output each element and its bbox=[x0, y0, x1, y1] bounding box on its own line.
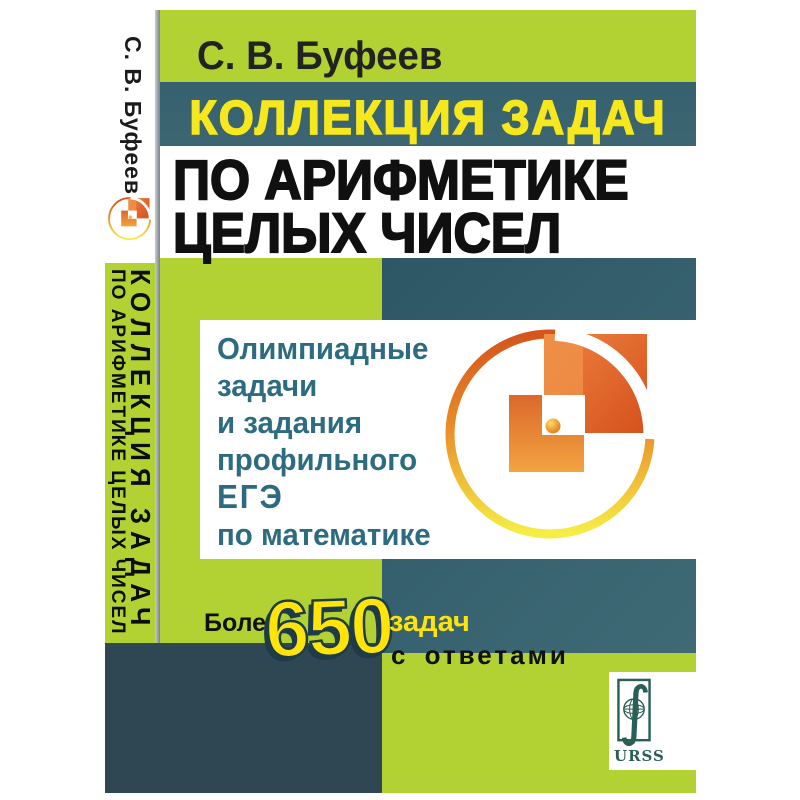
subtitle-line6: по математике bbox=[217, 517, 431, 552]
publisher-name: URSS bbox=[614, 747, 654, 765]
book: С. В. Буфеев bbox=[105, 10, 696, 793]
subtitle-line1: Олимпиадные bbox=[217, 331, 428, 366]
book-title-line3: ЦЕЛЫХ ЧИСЕЛ bbox=[173, 205, 561, 261]
subtitle-text: Олимпиадные задачи и задания профильного… bbox=[217, 330, 431, 553]
publisher-logo-box: ∫ URSS bbox=[609, 672, 696, 770]
book-cover-image: С. В. Буфеев bbox=[0, 0, 800, 800]
book-title-line1: КОЛЛЕКЦИЯ ЗАДАЧ bbox=[165, 91, 690, 148]
svg-text:∫: ∫ bbox=[618, 678, 651, 746]
front-cover: С. В. Буфеев КОЛЛЕКЦИЯ ЗАДАЧ ПО АРИФМЕТИ… bbox=[160, 10, 696, 793]
badge-suffix: с ответами bbox=[391, 640, 569, 671]
book-title-line2: ПО АРИФМЕТИКЕ bbox=[173, 152, 629, 208]
spine-title-line1: КОЛЛЕКЦИЯ ЗАДАЧ bbox=[126, 269, 154, 637]
publisher-circle-logo-icon bbox=[440, 324, 664, 548]
subtitle-line3: и задания bbox=[217, 405, 362, 440]
subtitle-line5: ЕГЭ bbox=[217, 478, 284, 515]
author-name: С. В. Буфеев bbox=[197, 34, 443, 79]
subtitle-panel: Олимпиадные задачи и задания профильного… bbox=[200, 320, 696, 559]
badge-count: 650 bbox=[264, 586, 394, 670]
spine-top-section: С. В. Буфеев bbox=[105, 10, 155, 263]
subtitle-line2: задачи bbox=[217, 368, 317, 403]
publisher-logo-icon: ∫ URSS bbox=[614, 678, 654, 765]
badge-noun: задач bbox=[389, 606, 470, 639]
spine-title-text: КОЛЛЕКЦИЯ ЗАДАЧ ПО АРИФМЕТИКЕ ЦЕЛЫХ ЧИСЕ… bbox=[106, 269, 154, 637]
subtitle-line4: профильного bbox=[217, 442, 417, 477]
spine-author-text: С. В. Буфеев bbox=[114, 36, 146, 196]
spine-title-section: КОЛЛЕКЦИЯ ЗАДАЧ ПО АРИФМЕТИКЕ ЦЕЛЫХ ЧИСЕ… bbox=[105, 263, 155, 645]
publisher-circle-logo-small-icon bbox=[107, 196, 153, 242]
